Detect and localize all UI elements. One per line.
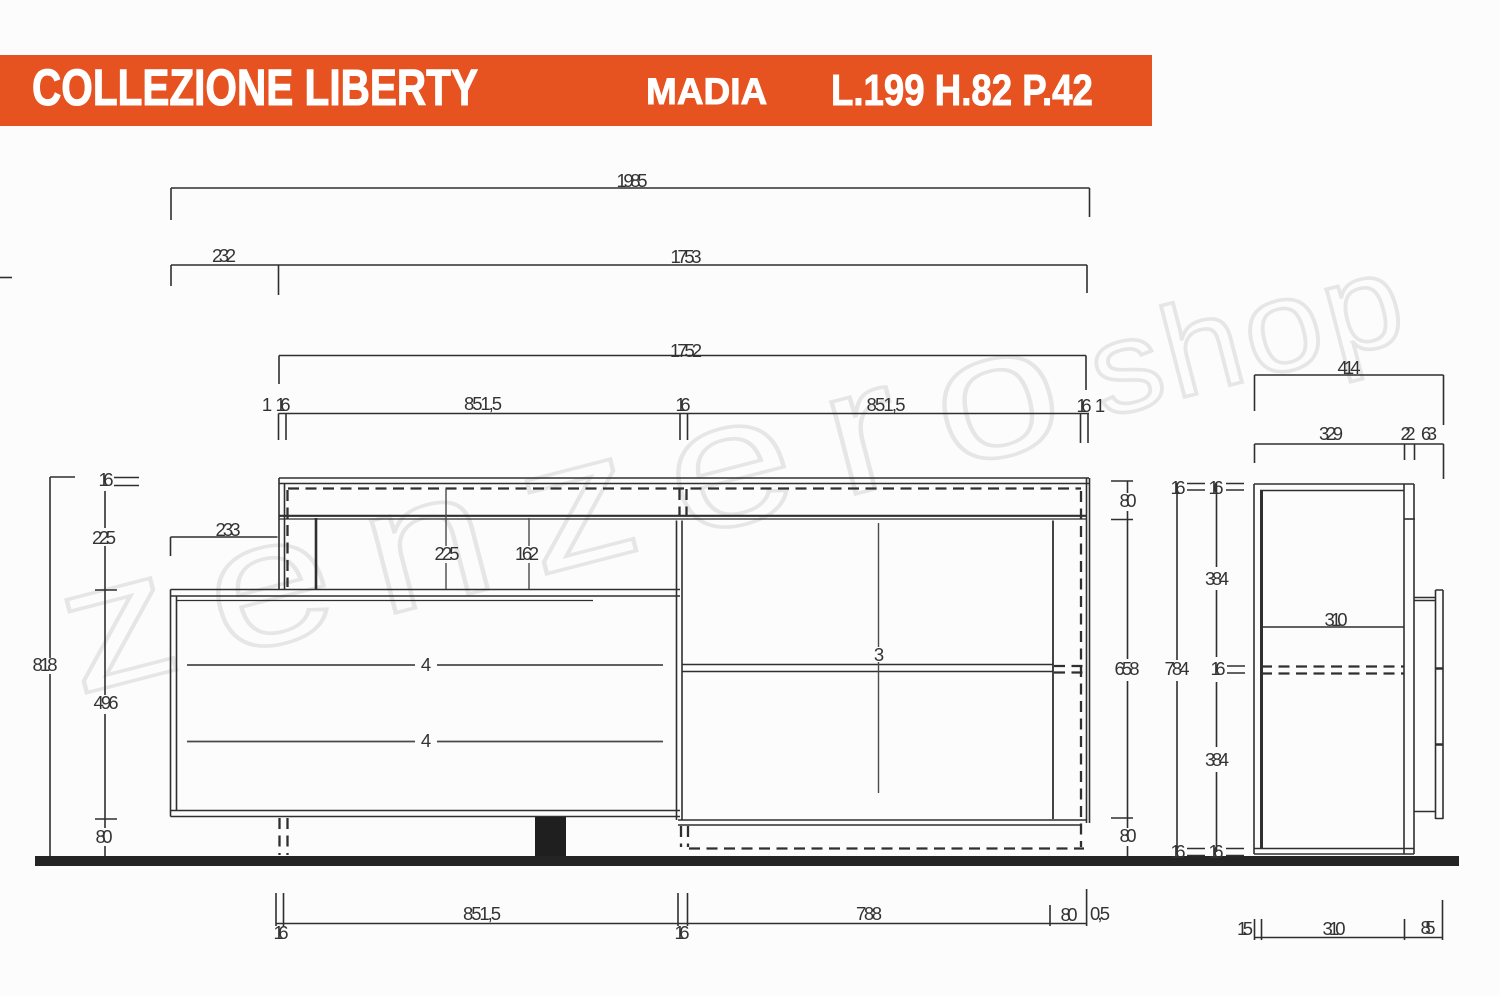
svg-text:162: 162 [515, 543, 539, 564]
svg-text:15: 15 [1237, 918, 1253, 939]
svg-text:80: 80 [1061, 904, 1078, 925]
svg-text:384: 384 [1205, 749, 1229, 770]
svg-text:414: 414 [1338, 357, 1361, 378]
svg-text:225: 225 [435, 543, 460, 564]
svg-text:16: 16 [274, 922, 289, 943]
svg-text:16: 16 [1171, 841, 1186, 862]
svg-text:1985: 1985 [617, 170, 648, 191]
svg-text:shop: shop [1074, 224, 1422, 445]
svg-text:16: 16 [675, 922, 690, 943]
svg-text:zenzero: zenzero [38, 272, 1117, 732]
svg-text:225: 225 [92, 527, 116, 548]
svg-text:851,5: 851,5 [463, 903, 501, 924]
svg-text:496: 496 [94, 692, 119, 713]
svg-text:384: 384 [1205, 568, 1229, 589]
svg-text:4: 4 [421, 654, 431, 675]
svg-text:658: 658 [1115, 658, 1140, 679]
svg-text:232: 232 [212, 245, 236, 266]
svg-text:784: 784 [1165, 658, 1190, 679]
svg-text:16: 16 [1171, 477, 1186, 498]
svg-text:16: 16 [99, 469, 114, 490]
svg-text:16: 16 [276, 394, 291, 415]
svg-text:16: 16 [1209, 841, 1224, 862]
svg-text:1: 1 [262, 394, 272, 415]
svg-text:1753: 1753 [671, 246, 702, 267]
svg-text:63: 63 [1421, 423, 1437, 444]
svg-text:80: 80 [96, 826, 113, 847]
svg-text:233: 233 [216, 519, 241, 540]
svg-text:1: 1 [1095, 395, 1105, 416]
svg-text:80: 80 [1120, 825, 1137, 846]
svg-text:4: 4 [421, 730, 431, 751]
svg-text:80: 80 [1120, 490, 1137, 511]
svg-text:16: 16 [1211, 658, 1226, 679]
svg-text:329: 329 [1319, 423, 1343, 444]
svg-text:0,5: 0,5 [1090, 903, 1110, 924]
svg-text:85: 85 [1421, 917, 1436, 938]
svg-text:22: 22 [1401, 423, 1416, 444]
svg-text:1752: 1752 [670, 340, 702, 361]
svg-text:788: 788 [856, 903, 882, 924]
svg-text:310: 310 [1325, 609, 1348, 630]
svg-text:310: 310 [1323, 918, 1346, 939]
svg-text:818: 818 [33, 654, 58, 675]
svg-text:851,5: 851,5 [464, 393, 502, 414]
svg-text:16: 16 [1209, 477, 1224, 498]
svg-text:3: 3 [874, 644, 884, 665]
svg-text:16: 16 [676, 394, 691, 415]
svg-text:16: 16 [1077, 395, 1092, 416]
svg-text:851,5: 851,5 [867, 394, 906, 415]
